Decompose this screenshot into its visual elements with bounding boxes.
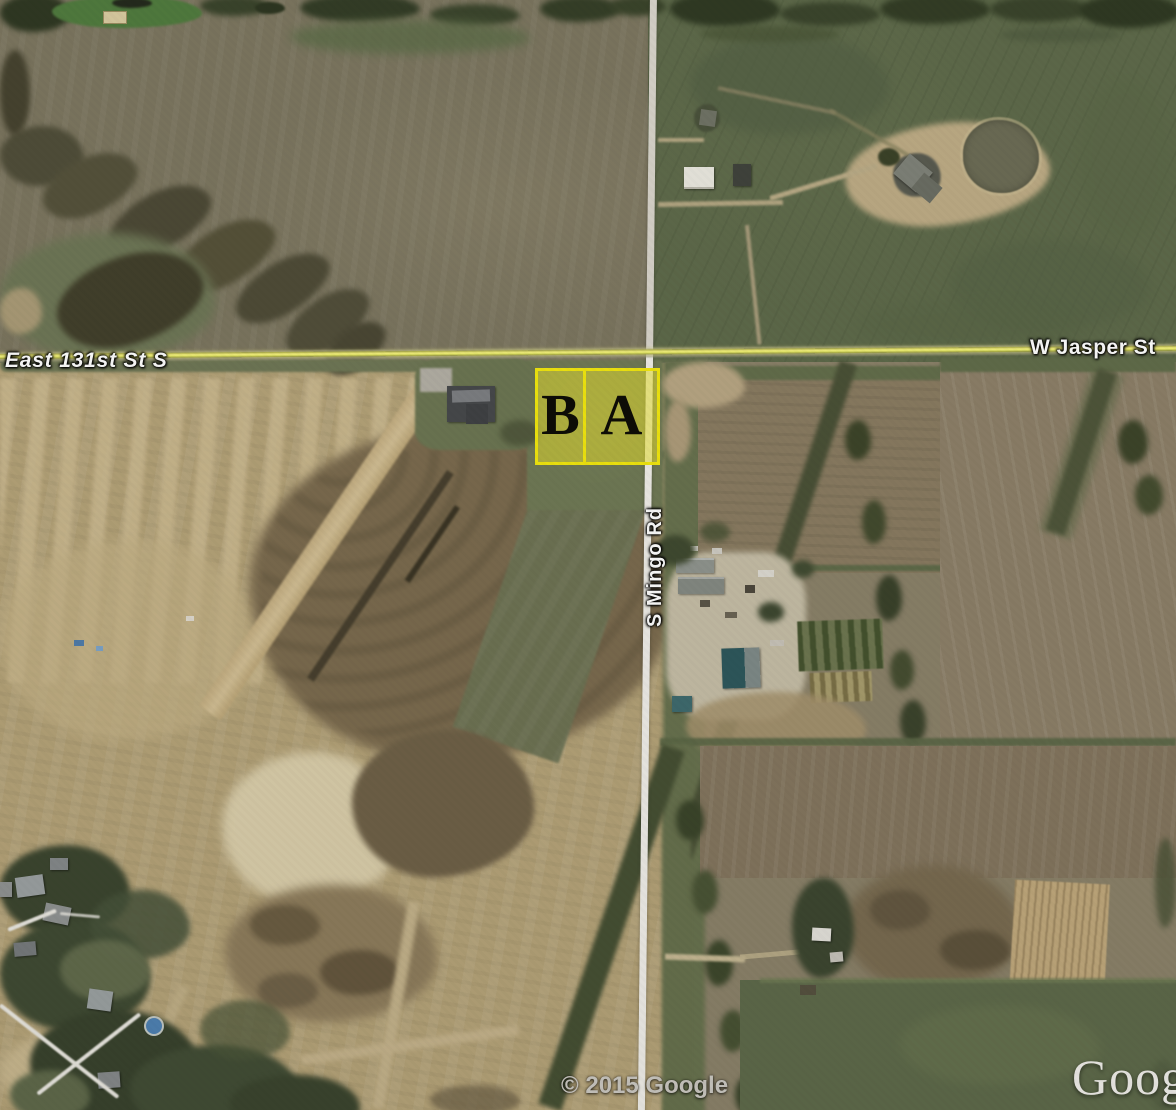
map-canvas[interactable]: B A East 131st St S W Jasper St S Mingo … <box>0 0 1176 1110</box>
terrain-feature <box>660 738 1176 746</box>
terrain-feature <box>0 50 30 135</box>
terrain-feature <box>800 985 816 995</box>
terrain-feature <box>940 362 1176 747</box>
terrain-feature <box>452 389 490 402</box>
terrain-feature <box>700 600 710 607</box>
terrain-feature <box>200 1000 290 1060</box>
pool <box>146 1018 162 1034</box>
pond <box>963 120 1039 193</box>
terrain-feature <box>186 616 194 621</box>
terrain-feature <box>940 930 1010 970</box>
terrain-feature <box>780 2 880 26</box>
barn-white <box>684 167 714 189</box>
terrain-feature <box>250 905 320 945</box>
terrain-feature <box>676 800 704 840</box>
terrain-feature <box>690 35 890 135</box>
terrain-feature <box>320 950 400 995</box>
terrain-feature <box>1155 838 1176 928</box>
terrain-feature <box>712 548 722 554</box>
terrain-feature <box>758 602 784 622</box>
terrain-feature <box>466 404 488 424</box>
terrain-feature <box>812 928 832 942</box>
terrain-feature <box>1080 80 1170 240</box>
parcel-a-overlay: A <box>586 368 660 465</box>
terrain-feature <box>940 358 1176 372</box>
barn-dark <box>733 164 751 186</box>
terrain-feature <box>290 20 530 54</box>
building <box>103 11 127 24</box>
terrain-feature <box>1000 28 1120 42</box>
street-label-s-mingo: S Mingo Rd <box>644 477 667 627</box>
terrain-feature <box>699 109 717 127</box>
terrain-feature <box>876 575 902 621</box>
terrain-feature <box>740 949 800 959</box>
terrain-feature <box>792 560 814 578</box>
terrain-feature <box>700 522 730 542</box>
street-label-w-jasper: W Jasper St <box>1030 336 1156 360</box>
terrain-feature <box>870 890 930 930</box>
terrain-feature <box>845 865 1020 990</box>
terrain-feature <box>700 26 840 42</box>
terrain-feature <box>500 420 540 446</box>
copyright-text: © 2015 Google <box>561 1072 728 1100</box>
terrain-feature <box>845 420 871 460</box>
terrain-feature <box>658 138 704 142</box>
terrain-feature <box>760 978 1176 983</box>
terrain-feature <box>1118 420 1148 464</box>
parcel-b-overlay: B <box>535 368 586 465</box>
terrain-feature <box>0 882 12 897</box>
terrain-feature <box>13 941 36 957</box>
terrain-feature <box>705 940 733 986</box>
barn-teal <box>721 647 760 688</box>
shed-teal <box>672 696 692 712</box>
terrain-feature <box>0 288 42 334</box>
terrain-feature <box>770 640 784 646</box>
google-watermark: Google <box>1072 1048 1176 1106</box>
street-label-east-131st: East 131st St S <box>5 349 168 373</box>
terrain-feature <box>665 400 691 462</box>
farm-shed <box>678 577 724 594</box>
terrain-feature <box>15 874 46 898</box>
terrain-feature <box>258 973 318 1008</box>
terrain-feature <box>74 640 84 646</box>
terrain-feature <box>900 1005 1100 1085</box>
terrain-feature <box>50 858 68 870</box>
terrain-feature <box>725 612 737 618</box>
terrain-feature <box>255 2 285 14</box>
terrain-feature <box>96 646 103 651</box>
terrain-feature <box>1135 475 1163 515</box>
parcel-a-label: A <box>601 386 643 448</box>
terrain-feature <box>830 951 844 962</box>
terrain-feature <box>700 746 1176 878</box>
terrain-feature <box>692 870 718 914</box>
terrain-feature <box>745 585 755 593</box>
terrain-feature <box>430 1085 520 1110</box>
terrain-layer <box>0 0 1176 1110</box>
terrain-feature <box>87 988 114 1011</box>
parcel-b-label: B <box>541 386 580 448</box>
garden-rows <box>797 619 884 672</box>
terrain-feature <box>862 500 886 544</box>
terrain-feature <box>758 570 774 577</box>
terrain-feature <box>890 650 914 690</box>
